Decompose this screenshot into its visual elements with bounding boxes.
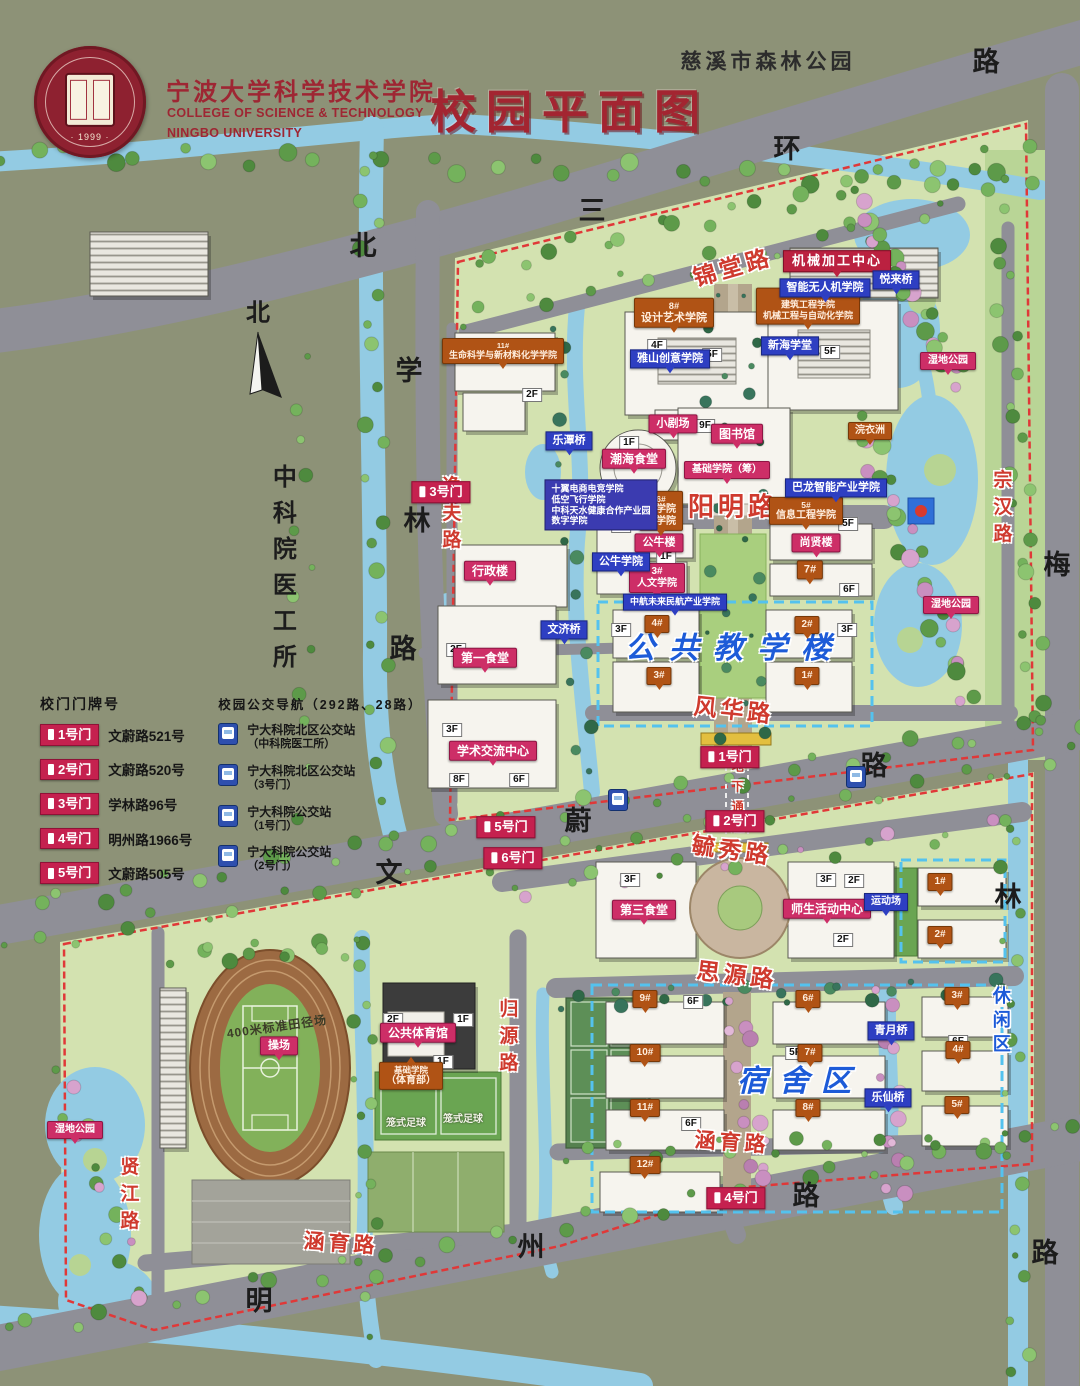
building-tag: 图书馆 [711, 424, 763, 444]
gate-tag: 3号门 [411, 481, 470, 503]
road-label: 学 [396, 355, 423, 387]
legend-bus: 校园公交导航（292路、28路） 宁大科院北区公交站（中科院医工所）宁大科院北区… [218, 694, 422, 897]
tag-text: 5# [951, 1099, 962, 1110]
gate-tag: 5号门 [476, 816, 535, 838]
building-tag: 7# [797, 1044, 822, 1062]
facility-tag: 中航未来民航产业学院 [623, 594, 727, 611]
building-tag: 4# [945, 1041, 970, 1059]
legend-gate-row: 1号门文蔚路521号 [40, 724, 192, 746]
tag-text: 笼式足球 [443, 1114, 483, 1125]
tag-text: 林 [995, 882, 1022, 912]
building-tag: 3# [944, 987, 969, 1005]
tag-text: 2号门 [58, 762, 91, 778]
tag-text: 北 [350, 231, 377, 261]
bridge-tag: 文济桥 [541, 620, 588, 639]
tag-text: 运动场 [871, 896, 901, 907]
tag-line: 人文学院 [637, 578, 677, 590]
tag-text: 3F [624, 874, 636, 885]
tag-line: 8# [641, 301, 707, 312]
tag-text: 路 [793, 1181, 820, 1211]
tag-line: 机械工程与自动化学院 [763, 311, 853, 322]
tag-line: 11# [449, 341, 557, 350]
legend-gate-row: 2号门文蔚路520号 [40, 759, 192, 781]
gate-tag: 1号门 [700, 746, 759, 768]
page-title: 校园平面图 [430, 76, 710, 142]
tag-text: 乐仙桥 [872, 1091, 905, 1103]
tag-text: 公牛学院 [599, 555, 643, 567]
building-tag: 11# [630, 1099, 660, 1117]
legend-gate-row: 3号门学林路96号 [40, 793, 192, 815]
floor-chip: 8F [449, 773, 469, 787]
tag-line: 信息工程学院 [776, 510, 836, 522]
tag-text: 环 [774, 134, 801, 164]
tag-text: 小剧场 [657, 417, 690, 429]
gate-tag: 4号门 [40, 828, 99, 850]
floor-chip: 5F [820, 345, 840, 359]
tag-text: 巴龙智能产业学院 [792, 481, 880, 493]
bus-icon [218, 845, 238, 867]
tag-text: 路 [1032, 1238, 1059, 1268]
bridge-tag: 悦来桥 [873, 270, 920, 289]
bus-stop-gate: （中科院医工所） [247, 738, 355, 752]
gate-door-icon [48, 833, 54, 844]
tag-text: 三 [579, 196, 606, 226]
gate-tag: 5号门 [40, 862, 99, 884]
tag-text: 涵育路 [303, 1230, 379, 1258]
bus-stop-name: 宁大科院北区公交站 [247, 723, 355, 738]
bus-stop-gate: （1号门） [247, 820, 331, 834]
tag-text: 明 [246, 1286, 273, 1316]
tag-text: 4# [651, 618, 662, 629]
building-tag: 8# [795, 1099, 820, 1117]
road-label: 林 [995, 881, 1022, 913]
tag-text: 第三食堂 [620, 903, 668, 917]
tag-text: 涵育路 [694, 1129, 770, 1157]
tag-text: 学 [396, 356, 423, 386]
floor-chip: 3F [816, 873, 836, 887]
tag-text: 路 [390, 634, 417, 664]
gate-door-icon [48, 764, 54, 775]
tag-text: 宗汉路 [990, 470, 1011, 551]
tag-text: 贤江路 [117, 1157, 138, 1238]
floor-chip: 2F [833, 933, 853, 947]
gate-tag: 1号门 [40, 724, 99, 746]
tag-text: 2F [837, 934, 849, 945]
road-label: 州 [518, 1231, 545, 1263]
tag-text: 2F [526, 389, 538, 400]
building-tag: 基础学院（筹） [684, 461, 770, 479]
tag-line: 中科天水健康合作产业园 [551, 505, 650, 516]
tag-text: 雅山创意学院 [637, 352, 703, 364]
bridge-tag: 青月桥 [868, 1021, 915, 1040]
tag-text: 图书馆 [719, 427, 755, 441]
gate-door-icon [708, 752, 714, 763]
tag-text: 1# [801, 670, 812, 681]
tag-text: 公共体育馆 [388, 1026, 448, 1040]
school-name-en1: COLLEGE OF SCIENCE & TECHNOLOGY [167, 106, 424, 120]
building-tag: 湿地公园 [923, 596, 979, 614]
tag-text: 蔚 [565, 806, 592, 836]
tag-text: 智能无人机学院 [787, 281, 864, 293]
building-tag: 4# [644, 615, 669, 633]
tag-text: 尚贤楼 [800, 536, 833, 548]
facility-tag: 新海学堂 [761, 336, 819, 355]
tag-text: 4号门 [724, 1190, 757, 1206]
tag-line: 5# [776, 500, 836, 510]
legend-gate-row: 4号门明州路1966号 [40, 828, 192, 850]
tag-line: 生命科学与新材料化学学院 [449, 350, 557, 361]
gate-door-icon [48, 868, 54, 879]
legend-bus-row: 宁大科院公交站（2号门） [218, 845, 422, 874]
tag-text: 12# [637, 1159, 654, 1170]
road-label: 路 [793, 1180, 820, 1212]
building-tag: 12# [630, 1156, 661, 1174]
gate-door-icon [714, 1193, 720, 1204]
tag-text: 林 [404, 506, 431, 536]
tag-text: 7# [804, 1047, 815, 1058]
seal-year: · 1999 · [34, 132, 146, 142]
bus-icon [218, 723, 238, 745]
building-tag: 5# [944, 1096, 969, 1114]
tag-text: 行政楼 [472, 564, 508, 578]
building-tag: 湿地公园 [47, 1121, 103, 1139]
bridge-tag: 乐仙桥 [865, 1088, 912, 1107]
tag-text: 文济桥 [548, 623, 581, 635]
school-name-cn: 宁波大学科学技术学院 [166, 72, 436, 107]
tag-line: 十翼电商电竞学院 [551, 483, 650, 494]
gate-door-icon [713, 816, 719, 827]
bus-stop-icon [846, 766, 866, 788]
building-tag: 3# [646, 667, 671, 685]
legend-bus-row: 宁大科院北区公交站（中科院医工所） [218, 723, 422, 752]
bus-icon [218, 764, 238, 786]
map-note: 笼式足球 [386, 1118, 426, 1130]
building-tag: 1# [927, 873, 952, 891]
tag-text: 11# [637, 1102, 653, 1113]
building-tag: 潮海食堂 [602, 449, 666, 469]
tag-text: 慈溪市森林公园 [681, 50, 856, 73]
tag-text: 1# [934, 876, 945, 887]
tag-line: 基础学院 [386, 1065, 436, 1075]
road-label: 梅 [1044, 549, 1071, 581]
tag-text: 5号门 [494, 819, 527, 835]
tag-text: 5号门 [58, 865, 91, 881]
tag-text: 阳明路 [688, 491, 778, 521]
building-tag: 第一食堂 [453, 648, 517, 668]
gate-address: 学林路96号 [108, 794, 177, 814]
tag-text: 2# [801, 619, 812, 630]
tag-text: 悦来桥 [880, 273, 913, 285]
road-label: 路 [390, 633, 417, 665]
facility-tag: 运动场 [864, 893, 908, 911]
tag-text: 湿地公园 [55, 1124, 95, 1135]
building-tag: 公共体育馆 [380, 1023, 456, 1043]
tag-text: 6# [802, 993, 813, 1004]
bus-icon [218, 805, 238, 827]
legend-gates-title: 校门门牌号 [40, 694, 192, 714]
legend-gate-row: 5号门文蔚路505号 [40, 862, 192, 884]
floor-chip: 3F [620, 873, 640, 887]
tag-line: 数字学院 [551, 516, 650, 527]
building-tag: 操场 [260, 1036, 298, 1055]
tag-text: 第一食堂 [461, 651, 509, 665]
tag-text: 梅 [1044, 550, 1071, 580]
tag-text: 3号门 [429, 484, 462, 500]
gate-tag: 4号门 [706, 1187, 765, 1209]
facility-tag: 巴龙智能产业学院 [785, 478, 887, 497]
tag-text: 路 [973, 47, 1000, 77]
tag-text: 1F [623, 437, 635, 448]
road-label: 北 [350, 230, 377, 262]
tag-text: 州 [518, 1232, 545, 1262]
tag-text: 机械加工中心 [792, 253, 882, 268]
gate-tag: 6号门 [483, 847, 542, 869]
road-label: 归源路 [495, 999, 518, 1080]
gate-door-icon [48, 729, 54, 740]
building-tag: 6# [795, 990, 820, 1008]
road-label: 蔚 [565, 805, 592, 837]
tag-text: 9# [639, 993, 650, 1004]
building-tag: 行政楼 [464, 561, 516, 581]
legend-bus-row: 宁大科院公交站（1号门） [218, 805, 422, 834]
tag-text: 中航未来民航产业学院 [630, 597, 720, 607]
building-tag: 10# [630, 1044, 661, 1062]
tag-text: 6F [513, 774, 525, 785]
building-tag: 尚贤楼 [792, 533, 841, 552]
tag-text: 青月桥 [875, 1024, 908, 1036]
tag-line: 设计艺术学院 [641, 312, 707, 325]
gate-address: 文蔚路505号 [108, 863, 185, 883]
legend: 校门门牌号 1号门文蔚路521号2号门文蔚路520号3号门学林路96号4号门明州… [40, 694, 423, 897]
tag-text: 3# [653, 670, 664, 681]
tag-text: 8F [453, 774, 465, 785]
legend-bus-title: 校园公交导航（292路、28路） [218, 694, 422, 713]
bridge-tag: 乐潭桥 [546, 431, 593, 450]
tag-text: 9F [699, 420, 711, 431]
floor-chip: 2F [844, 874, 864, 888]
building-tag: 2# [927, 926, 952, 944]
tag-text: 1号门 [718, 749, 751, 765]
tag-text: 3F [446, 724, 458, 735]
tag-text: 学术交流中心 [457, 744, 529, 758]
tag-text: 10# [637, 1047, 654, 1058]
tag-text: 休闲区 [991, 986, 1011, 1058]
tag-text: 2F [848, 875, 860, 886]
building-tag: 湿地公园 [920, 352, 976, 370]
campus-map-canvas [0, 0, 1080, 1386]
floor-chip: 6F [509, 773, 529, 787]
floor-chip: 3F [442, 723, 462, 737]
building-tag: 2# [794, 616, 819, 634]
tag-text: 8# [802, 1102, 813, 1113]
floor-chip: 6F [839, 583, 859, 597]
tag-text: 3F [820, 874, 832, 885]
tag-text: 基础学院（筹） [692, 464, 762, 475]
facility-tag: 雅山创意学院 [630, 349, 710, 368]
floor-chip: 2F [522, 388, 542, 402]
gate-door-icon [48, 798, 54, 809]
facility-tag: 公牛学院 [592, 552, 650, 571]
seal-book-icon [65, 73, 115, 127]
road-label: 涵育路 [303, 1229, 380, 1259]
bus-stop-gate: （3号门） [247, 779, 355, 793]
tag-text: 5F [824, 346, 836, 357]
tag-text: 归源路 [496, 999, 517, 1080]
zone-label-leisure: 休闲区 [989, 986, 1011, 1058]
bus-stop-icon [608, 789, 628, 811]
building-tag: 11#生命科学与新材料化学学院 [442, 338, 564, 364]
school-name-en2: NINGBO UNIVERSITY [167, 126, 302, 140]
tag-text: 乐潭桥 [553, 434, 586, 446]
university-seal: · 1999 · [34, 46, 146, 158]
tag-text: 宿舍区 [737, 1065, 863, 1098]
tag-text: 湿地公园 [931, 599, 971, 610]
gate-address: 文蔚路521号 [108, 725, 185, 745]
tag-text: 3# [951, 990, 962, 1001]
road-label: 阳明路 [688, 491, 778, 522]
building-tag: 第三食堂 [612, 900, 676, 920]
tag-text: 新海学堂 [768, 339, 812, 351]
tag-text: 2# [934, 929, 945, 940]
floor-chip: 6F [683, 995, 703, 1009]
tag-text: 浣衣洲 [855, 425, 885, 436]
building-tag: 机械加工中心 [783, 250, 891, 272]
industry-college-list: 十翼电商电竞学院低空飞行学院中科天水健康合作产业园数字学院 [544, 479, 657, 530]
bus-stop-name: 宁大科院北区公交站 [247, 764, 355, 779]
tag-line: 建筑工程学院 [763, 300, 853, 311]
bus-stop-name: 宁大科院公交站 [247, 805, 331, 820]
tag-text: 7# [804, 563, 816, 575]
road-label: 宗汉路 [989, 470, 1012, 551]
road-label: 三 [579, 195, 606, 227]
tag-text: 2号门 [723, 813, 756, 829]
gate-door-icon [484, 822, 490, 833]
road-label: 路 [1032, 1237, 1059, 1269]
tag-text: 4# [952, 1044, 963, 1055]
building-tag: 基础学院（体育部） [379, 1062, 443, 1090]
tag-text: 操场 [268, 1039, 290, 1051]
building-tag: 1# [794, 667, 819, 685]
tag-line: （体育部） [386, 1075, 436, 1087]
building-tag: 小剧场 [649, 414, 698, 433]
tag-text: 笼式足球 [386, 1118, 426, 1129]
floor-chip: 1F [453, 1013, 473, 1027]
facility-tag: 智能无人机学院 [780, 278, 871, 297]
tag-text: 中科院医工所 [268, 464, 295, 680]
building-tag: 学术交流中心 [449, 741, 537, 761]
bus-stop-name: 宁大科院公交站 [247, 845, 331, 860]
legend-gates: 校门门牌号 1号门文蔚路521号2号门文蔚路520号3号门学林路96号4号门明州… [40, 694, 192, 897]
map-note: 笼式足球 [443, 1114, 483, 1126]
road-label: 明 [246, 1285, 273, 1317]
bus-stop-gate: （2号门） [247, 860, 331, 874]
building-tag: 师生活动中心 [783, 899, 871, 919]
tag-text: 6号门 [501, 850, 534, 866]
tag-text: 1F [457, 1014, 469, 1025]
road-label: 贤江路 [116, 1157, 139, 1238]
tag-text: 5F [842, 518, 854, 529]
tag-text: 北 [246, 300, 270, 327]
compass-north-label: 北 [246, 300, 270, 329]
gate-door-icon [491, 853, 497, 864]
tag-text: 6F [687, 996, 699, 1007]
tag-text: 1号门 [58, 727, 91, 743]
gate-tag: 2号门 [40, 759, 99, 781]
road-label: 路 [973, 46, 1000, 78]
gate-tag: 2号门 [705, 810, 764, 832]
building-tag: 8#设计艺术学院 [634, 298, 714, 328]
tag-text: 师生活动中心 [791, 902, 863, 916]
gate-door-icon [419, 487, 425, 498]
tag-text: 3号门 [58, 796, 91, 812]
gate-address: 文蔚路520号 [108, 759, 185, 779]
road-label: 涵育路 [694, 1128, 771, 1158]
zone-label-dormitory: 宿舍区 [737, 1064, 863, 1100]
tag-text: 4号门 [58, 831, 91, 847]
road-label: 林 [404, 505, 431, 537]
gate-address: 明州路1966号 [108, 829, 192, 849]
road-label: 环 [774, 133, 801, 165]
forest-park-label: 慈溪市森林公园 [681, 49, 856, 74]
campus-map: · 1999 · 宁波大学科学技术学院 COLLEGE OF SCIENCE &… [0, 0, 1080, 1386]
institute-area-label: 中科院医工所 [267, 464, 296, 680]
building-tag: 浣衣洲 [848, 422, 892, 440]
gate-tag: 3号门 [40, 793, 99, 815]
tag-text: 潮海食堂 [610, 452, 658, 466]
building-tag: 7# [797, 560, 823, 579]
building-tag: 9# [632, 990, 657, 1008]
tag-text: 6F [843, 584, 855, 595]
legend-bus-row: 宁大科院北区公交站（3号门） [218, 764, 422, 793]
tag-text: 湿地公园 [928, 355, 968, 366]
tag-line: 低空飞行学院 [551, 494, 650, 505]
